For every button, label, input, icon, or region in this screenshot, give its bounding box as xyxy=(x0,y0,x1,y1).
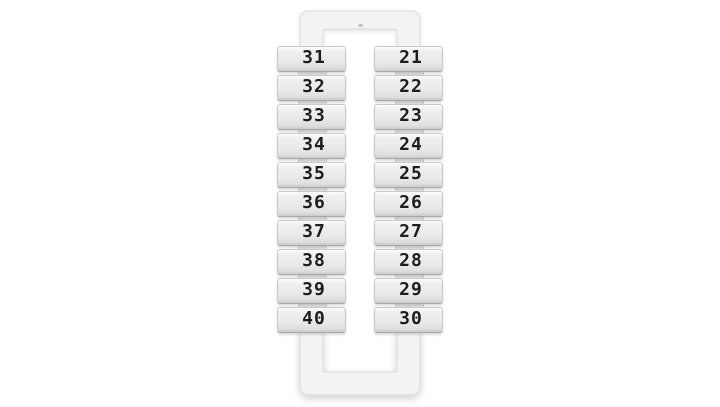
marker-number: 32 xyxy=(297,78,326,96)
terminal-marker-strip-photo: 31323334353637383940 2122232425262728293… xyxy=(0,0,720,407)
marker-number: 40 xyxy=(297,310,326,328)
marker-number: 26 xyxy=(394,194,423,212)
marker-tab: 24 xyxy=(374,133,443,159)
marker-tab: 26 xyxy=(374,191,443,217)
marker-number: 31 xyxy=(297,49,326,67)
carrier-frame-top-bridge xyxy=(300,11,420,48)
mold-mark xyxy=(358,24,363,27)
marker-tab: 35 xyxy=(277,162,346,188)
marker-number: 38 xyxy=(297,252,326,270)
marker-tab: 29 xyxy=(374,278,443,304)
marker-tab: 27 xyxy=(374,220,443,246)
marker-tab: 38 xyxy=(277,249,346,275)
carrier-frame-bottom-bridge xyxy=(300,331,420,395)
marker-number: 21 xyxy=(394,49,423,67)
marker-tab: 28 xyxy=(374,249,443,275)
marker-tab: 34 xyxy=(277,133,346,159)
marker-tab: 21 xyxy=(374,46,443,72)
marker-number: 25 xyxy=(394,165,423,183)
marker-number: 34 xyxy=(297,136,326,154)
marker-number: 37 xyxy=(297,223,326,241)
marker-tab: 36 xyxy=(277,191,346,217)
marker-tab: 40 xyxy=(277,307,346,333)
marker-tab: 37 xyxy=(277,220,346,246)
marker-number: 22 xyxy=(394,78,423,96)
marker-tab: 32 xyxy=(277,75,346,101)
marker-tab: 39 xyxy=(277,278,346,304)
marker-number: 23 xyxy=(394,107,423,125)
marker-number: 24 xyxy=(394,136,423,154)
marker-number: 27 xyxy=(394,223,423,241)
marker-number: 33 xyxy=(297,107,326,125)
marker-number: 29 xyxy=(394,281,423,299)
marker-number: 36 xyxy=(297,194,326,212)
marker-tab: 31 xyxy=(277,46,346,72)
marker-tab: 30 xyxy=(374,307,443,333)
marker-tab: 23 xyxy=(374,104,443,130)
marker-number: 28 xyxy=(394,252,423,270)
marker-tab: 25 xyxy=(374,162,443,188)
marker-number: 30 xyxy=(394,310,423,328)
marker-number: 35 xyxy=(297,165,326,183)
marker-number: 39 xyxy=(297,281,326,299)
marker-tab: 22 xyxy=(374,75,443,101)
marker-tab: 33 xyxy=(277,104,346,130)
